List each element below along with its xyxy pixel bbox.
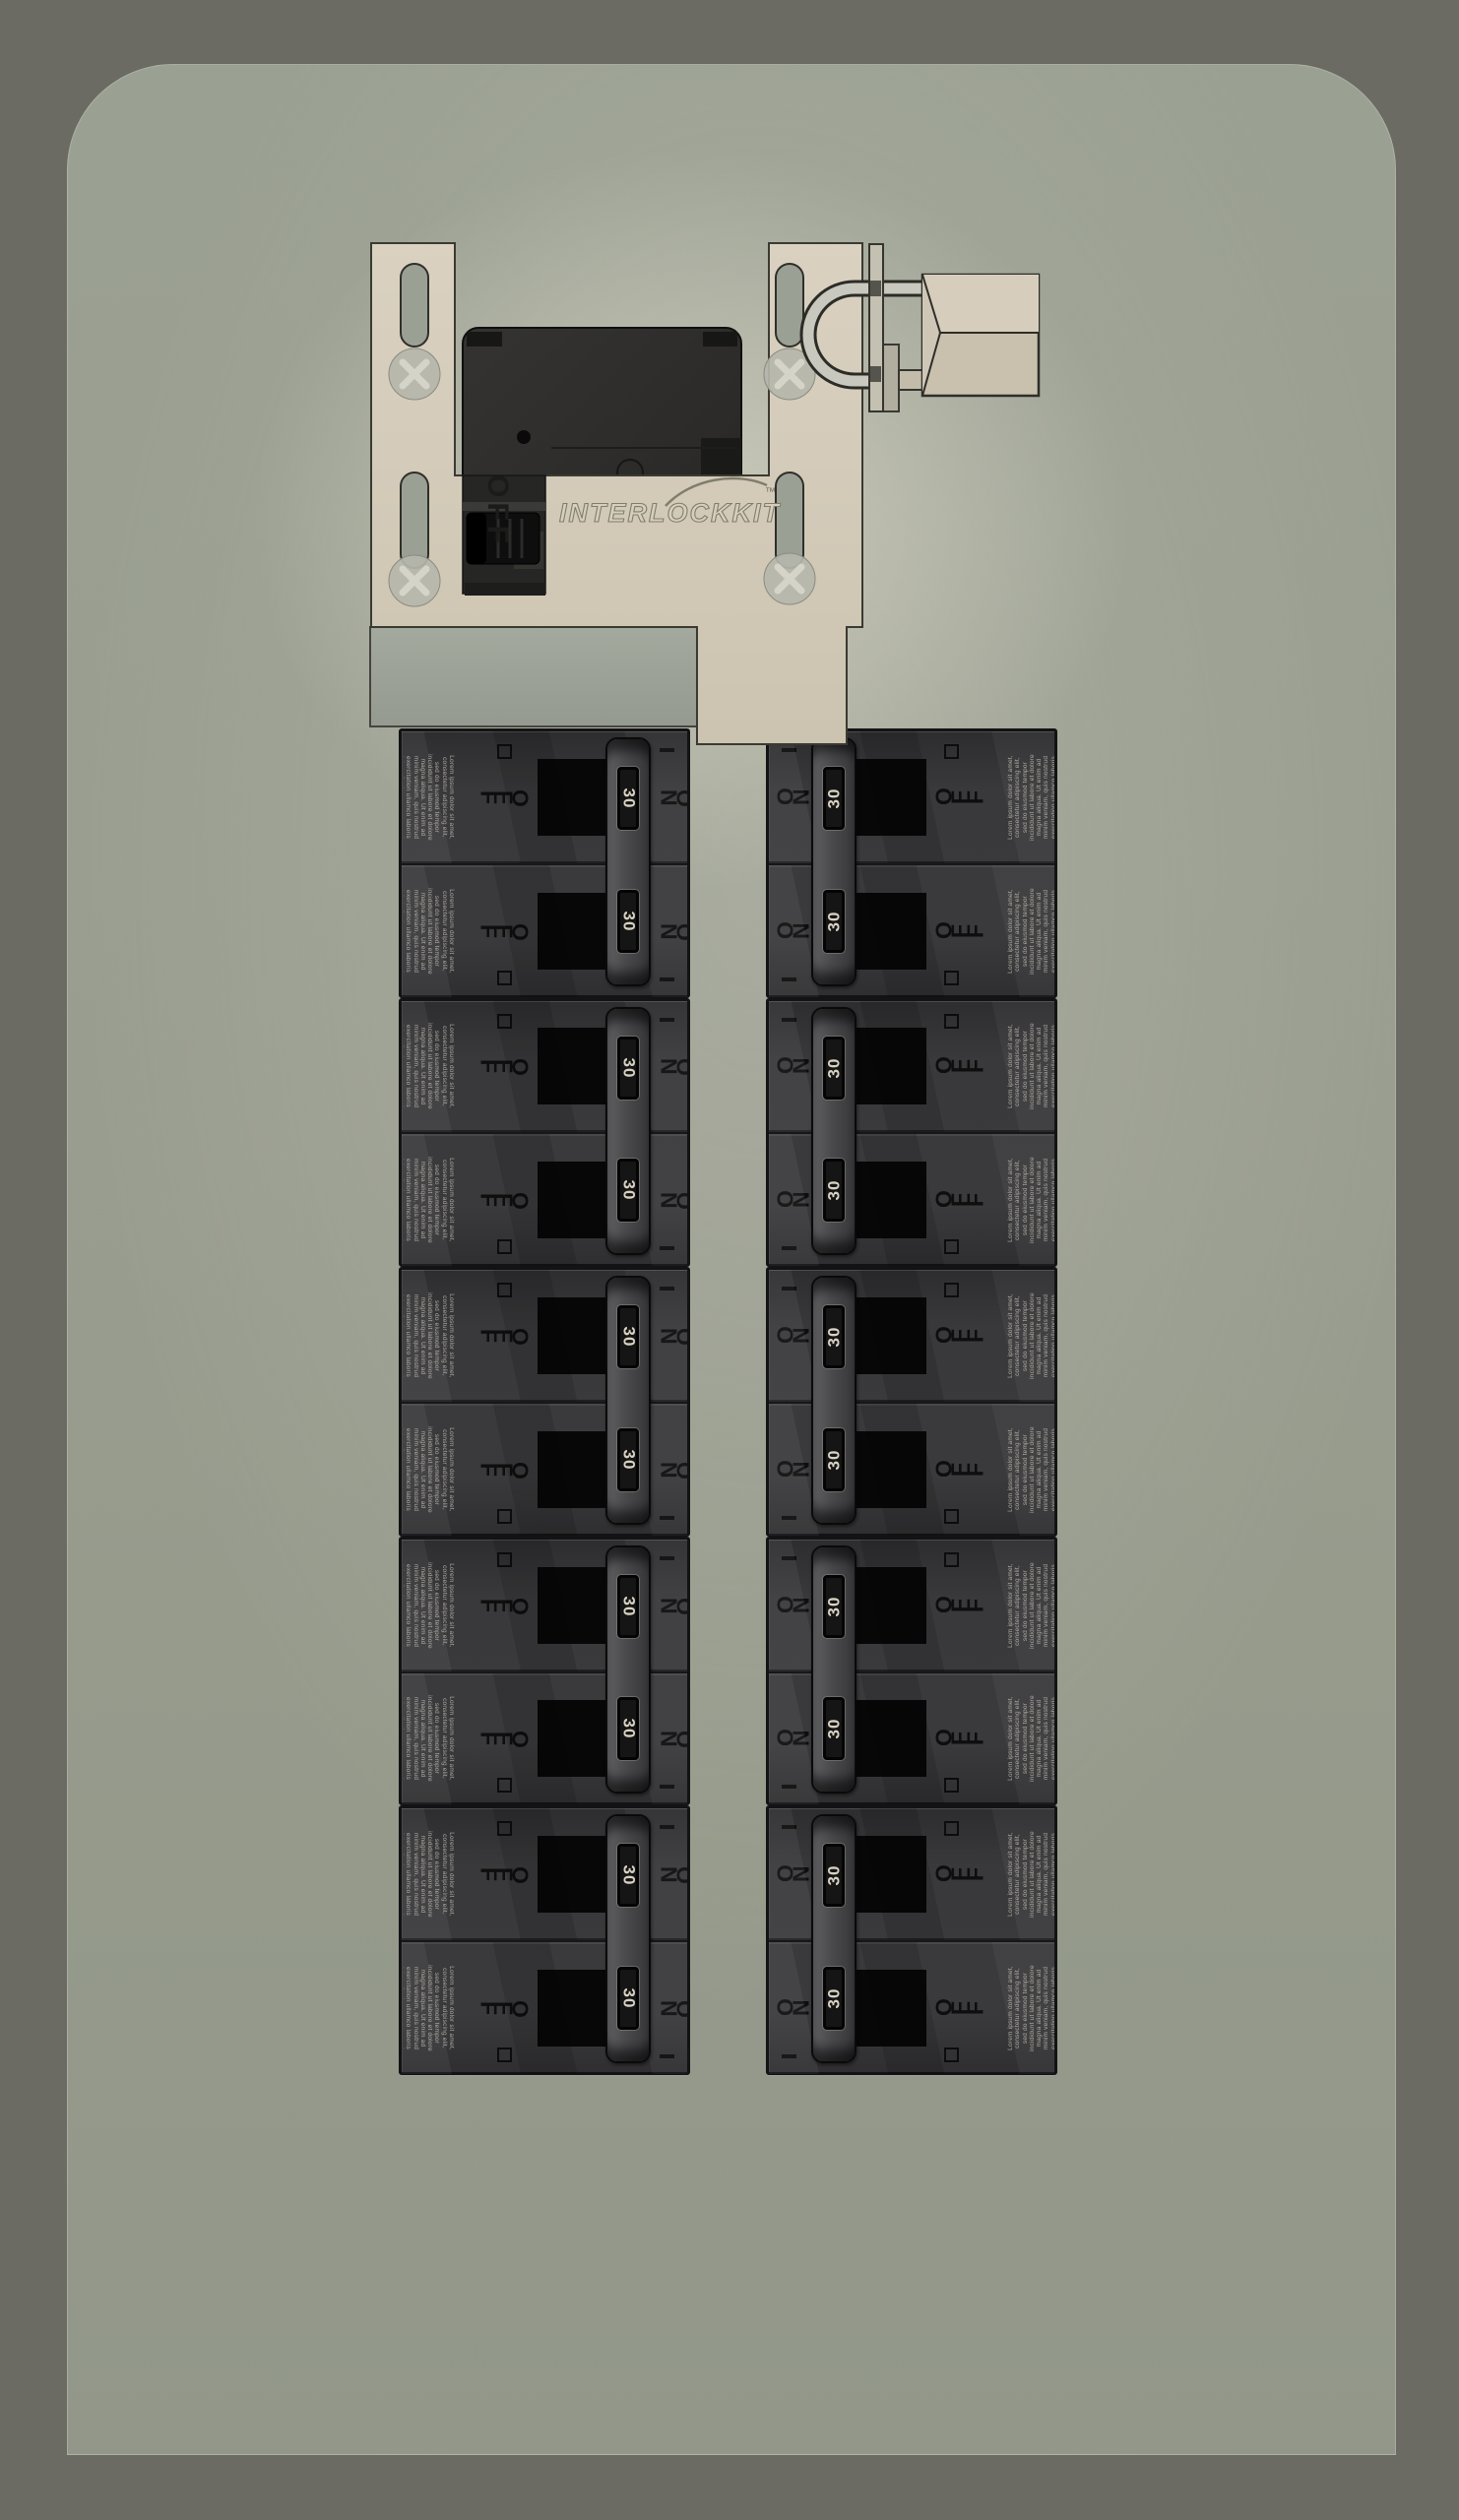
warning-text: Lorem ipsum dolor sit amet, consectetur … [404,1963,455,2053]
breaker-unit: Lorem ipsum dolor sit amet, consectetur … [399,1537,690,1806]
indicator-dash [782,748,796,752]
indicator-dash [660,1825,674,1829]
amp-window: 30 [823,1305,845,1368]
warning-text: Lorem ipsum dolor sit amet, consectetur … [404,1155,455,1245]
amp-window: 30 [823,1575,845,1638]
on-label: ON [778,919,809,942]
off-label: OFF [936,1055,983,1078]
handle-tie-bar: 3030 [605,1814,651,2063]
indicator-square [497,971,512,985]
rotated-glyph: N [791,1328,813,1344]
breaker-face-recess [538,759,608,836]
on-label: NO [661,919,687,942]
amp-window: 30 [617,1575,639,1638]
rotated-glyph: F [965,1192,987,1208]
off-label: FFO [480,1189,528,1212]
amp-rating-label: 30 [618,1719,638,1739]
indicator-dash [782,1287,796,1291]
indicator-square [497,1014,512,1029]
on-label: NO [661,1594,687,1616]
breaker-unit: Lorem ipsum dolor sit amet, consectetur … [766,1267,1057,1537]
warning-text: Lorem ipsum dolor sit amet, consectetur … [1007,1829,1054,1920]
amp-rating-label: 30 [618,1449,638,1470]
breaker-face-recess [856,759,926,836]
off-label: FFO [480,919,528,942]
breaker-face-recess [538,1836,608,1913]
rotated-glyph: O [673,1598,688,1613]
indicator-dash [782,977,796,981]
rotated-glyph: O [673,1866,688,1882]
rotated-glyph: O [509,1058,532,1074]
amp-rating-label: 30 [618,1596,638,1616]
rotated-glyph: N [791,789,813,805]
handle-tie-bar: 3030 [605,1545,651,1795]
amp-rating-label: 30 [824,1865,844,1886]
breaker-face-recess [538,1028,608,1104]
on-label: NO [661,1997,687,2020]
amp-window: 30 [823,1844,845,1907]
off-label: FFO [480,1728,528,1750]
on-label: ON [778,1594,809,1616]
off-label: OFF [936,1189,983,1212]
handle-tie-bar: 3030 [811,737,856,986]
rotated-glyph: F [965,2000,987,2016]
breaker-face-recess [856,1970,926,2047]
on-label: ON [778,1728,809,1750]
amp-rating-label: 30 [618,1057,638,1078]
indicator-square [497,1239,512,1254]
off-label: OFF [936,786,983,808]
indicator-square [944,1014,959,1029]
rotated-glyph: O [509,1328,532,1344]
handle-tie-bar: 3030 [605,737,651,986]
amp-rating-label: 30 [824,1596,844,1616]
breaker-face-recess [538,1431,608,1508]
indicator-dash [660,1785,674,1789]
amp-window: 30 [823,1967,845,2030]
rotated-glyph: N [791,2000,813,2016]
off-label: OFF [936,1863,983,1886]
indicator-square [497,1283,512,1297]
rotated-glyph: O [509,2000,532,2016]
indicator-dash [660,977,674,981]
breaker-face-recess [538,893,608,970]
off-label: FFO [480,1863,528,1886]
amp-rating-label: 30 [824,1180,844,1201]
on-label: ON [778,1458,809,1480]
rotated-glyph: O [673,1462,688,1478]
indicator-dash [660,1556,674,1560]
rotated-glyph: F [965,1328,987,1344]
warning-text: Lorem ipsum dolor sit amet, consectetur … [404,1291,455,1381]
off-label: OFF [936,1458,983,1480]
rotated-glyph: N [791,1462,813,1478]
warning-text: Lorem ipsum dolor sit amet, consectetur … [1007,1424,1054,1515]
rotated-glyph: O [673,923,688,939]
warning-text: Lorem ipsum dolor sit amet, consectetur … [1007,1963,1054,2053]
handle-tie-bar: 3030 [811,1545,856,1795]
rotated-glyph: F [965,1866,987,1882]
indicator-square [497,744,512,759]
on-label: NO [661,786,687,808]
amp-rating-label: 30 [618,1988,638,2009]
off-label: FFO [480,1055,528,1078]
breaker-face-recess [538,1970,608,2047]
rotated-glyph: F [965,789,987,805]
indicator-dash [660,2054,674,2058]
amp-window: 30 [823,1159,845,1222]
off-label: OFF [936,1325,983,1348]
amp-rating-label: 30 [824,1057,844,1078]
warning-text: Lorem ipsum dolor sit amet, consectetur … [404,752,455,843]
breaker-face-recess [856,1567,926,1644]
amp-rating-label: 30 [824,1719,844,1739]
handle-tie-bar: 3030 [811,1007,856,1256]
indicator-dash [782,1018,796,1022]
breaker-unit: Lorem ipsum dolor sit amet, consectetur … [399,998,690,1268]
rotated-glyph: O [509,1731,532,1746]
warning-text: Lorem ipsum dolor sit amet, consectetur … [1007,1693,1054,1784]
amp-rating-label: 30 [618,788,638,809]
indicator-square [944,744,959,759]
breaker-face-recess [856,1162,926,1238]
indicator-dash [660,1516,674,1520]
amp-window: 30 [617,1428,639,1491]
indicator-dash [660,748,674,752]
indicator-square [497,1778,512,1793]
handle-tie-bar: 3030 [605,1007,651,1256]
indicator-dash [782,1556,796,1560]
off-label: OFF [936,919,983,942]
amp-window: 30 [823,1697,845,1760]
rotated-glyph: O [673,1192,688,1208]
rotated-glyph: N [791,1058,813,1074]
on-label: ON [778,1325,809,1348]
breaker-unit: Lorem ipsum dolor sit amet, consectetur … [399,1267,690,1537]
off-label: FFO [480,1997,528,2020]
indicator-square [944,971,959,985]
rotated-glyph: O [509,1192,532,1208]
rotated-glyph: O [673,2000,688,2016]
indicator-square [944,1509,959,1524]
off-label: OFF [936,1997,983,2020]
warning-text: Lorem ipsum dolor sit amet, consectetur … [404,1829,455,1920]
breaker-unit: Lorem ipsum dolor sit amet, consectetur … [766,1537,1057,1806]
indicator-dash [782,1516,796,1520]
off-label: FFO [480,1325,528,1348]
indicator-square [944,1778,959,1793]
on-label: NO [661,1325,687,1348]
amp-window: 30 [617,890,639,953]
amp-rating-label: 30 [824,1449,844,1470]
warning-text: Lorem ipsum dolor sit amet, consectetur … [1007,1560,1054,1651]
amp-rating-label: 30 [618,911,638,931]
warning-text: Lorem ipsum dolor sit amet, consectetur … [1007,752,1054,843]
indicator-dash [660,1018,674,1022]
handle-tie-bar: 3030 [811,1276,856,1525]
amp-window: 30 [617,767,639,830]
indicator-dash [782,2054,796,2058]
indicator-square [497,1552,512,1567]
off-label: OFF [936,1594,983,1616]
warning-text: Lorem ipsum dolor sit amet, consectetur … [1007,886,1054,976]
amp-window: 30 [617,1037,639,1100]
handle-tie-bar: 3030 [811,1814,856,2063]
panel-cover [67,64,1396,2455]
indicator-square [944,1283,959,1297]
warning-text: Lorem ipsum dolor sit amet, consectetur … [1007,1155,1054,1245]
off-label: OFF [936,1728,983,1750]
amp-rating-label: 30 [824,788,844,809]
breaker-face-recess [856,893,926,970]
breaker-column-right: Lorem ipsum dolor sit amet, consectetur … [766,728,1057,2075]
breaker-column-left: Lorem ipsum dolor sit amet, consectetur … [399,728,690,2075]
breaker-unit: Lorem ipsum dolor sit amet, consectetur … [766,998,1057,1268]
rotated-glyph: O [673,1731,688,1746]
off-label: FFO [480,1594,528,1616]
on-label: ON [778,1055,809,1078]
on-label: NO [661,1189,687,1212]
indicator-dash [782,1785,796,1789]
indicator-square [944,2047,959,2062]
amp-rating-label: 30 [618,1865,638,1886]
rotated-glyph: O [509,1866,532,1882]
breaker-face-recess [538,1700,608,1777]
indicator-dash [782,1246,796,1250]
warning-text: Lorem ipsum dolor sit amet, consectetur … [404,1021,455,1111]
rotated-glyph: F [965,1058,987,1074]
warning-text: Lorem ipsum dolor sit amet, consectetur … [404,1693,455,1784]
amp-window: 30 [617,1844,639,1907]
on-label: ON [778,786,809,808]
amp-rating-label: 30 [824,1988,844,2009]
indicator-square [497,1821,512,1836]
on-label: ON [778,1997,809,2020]
on-label: ON [778,1189,809,1212]
on-label: ON [778,1863,809,1886]
warning-text: Lorem ipsum dolor sit amet, consectetur … [1007,1291,1054,1381]
rotated-glyph: O [509,1598,532,1613]
breaker-face-recess [538,1297,608,1374]
on-label: NO [661,1863,687,1886]
on-label: NO [661,1458,687,1480]
indicator-dash [660,1246,674,1250]
indicator-square [944,1552,959,1567]
breaker-face-recess [856,1836,926,1913]
rotated-glyph: N [791,1192,813,1208]
indicator-dash [660,1287,674,1291]
off-label: FFO [480,1458,528,1480]
amp-rating-label: 30 [618,1180,638,1201]
illustration-canvas: Lorem ipsum dolor sit amet, consectetur … [0,0,1459,2520]
breaker-unit: Lorem ipsum dolor sit amet, consectetur … [766,728,1057,998]
rotated-glyph: F [965,1731,987,1746]
rotated-glyph: O [509,923,532,939]
rotated-glyph: F [965,1462,987,1478]
amp-window: 30 [617,1305,639,1368]
handle-tie-bar: 3030 [605,1276,651,1525]
amp-rating-label: 30 [618,1327,638,1348]
breaker-unit: Lorem ipsum dolor sit amet, consectetur … [399,728,690,998]
indicator-square [497,1509,512,1524]
indicator-square [944,1821,959,1836]
off-label: FFO [480,786,528,808]
amp-window: 30 [823,767,845,830]
rotated-glyph: O [673,1058,688,1074]
breaker-unit: Lorem ipsum dolor sit amet, consectetur … [399,1805,690,2075]
indicator-square [497,2047,512,2062]
rotated-glyph: N [791,1866,813,1882]
rotated-glyph: O [673,1328,688,1344]
breaker-face-recess [856,1028,926,1104]
rotated-glyph: O [673,789,688,805]
rotated-glyph: F [965,923,987,939]
rotated-glyph: N [791,923,813,939]
warning-text: Lorem ipsum dolor sit amet, consectetur … [1007,1021,1054,1111]
breaker-face-recess [856,1700,926,1777]
on-label: NO [661,1055,687,1078]
breaker-face-recess [538,1162,608,1238]
breaker-unit: Lorem ipsum dolor sit amet, consectetur … [766,1805,1057,2075]
breaker-face-recess [856,1297,926,1374]
rotated-glyph: O [509,789,532,805]
rotated-glyph: O [509,1462,532,1478]
amp-window: 30 [823,1428,845,1491]
amp-window: 30 [617,1967,639,2030]
rotated-glyph: F [965,1598,987,1613]
breaker-face-recess [856,1431,926,1508]
amp-window: 30 [617,1159,639,1222]
warning-text: Lorem ipsum dolor sit amet, consectetur … [404,1560,455,1651]
amp-window: 30 [617,1697,639,1760]
rotated-glyph: N [791,1731,813,1746]
warning-text: Lorem ipsum dolor sit amet, consectetur … [404,1424,455,1515]
warning-text: Lorem ipsum dolor sit amet, consectetur … [404,886,455,976]
on-label: NO [661,1728,687,1750]
indicator-square [944,1239,959,1254]
amp-window: 30 [823,890,845,953]
amp-rating-label: 30 [824,911,844,931]
indicator-dash [782,1825,796,1829]
amp-window: 30 [823,1037,845,1100]
amp-rating-label: 30 [824,1327,844,1348]
breaker-face-recess [538,1567,608,1644]
rotated-glyph: N [791,1598,813,1613]
